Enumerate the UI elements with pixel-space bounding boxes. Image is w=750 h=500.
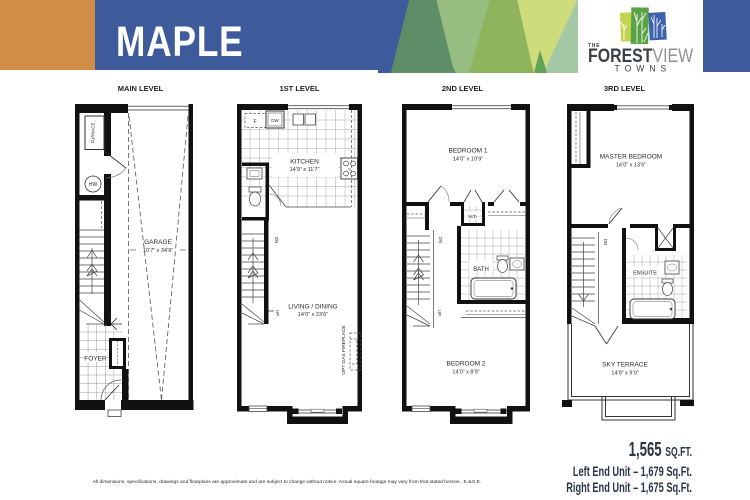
- svg-text:W/D: W/D: [468, 214, 477, 219]
- svg-text:10’7” x 34’9”: 10’7” x 34’9”: [143, 248, 173, 254]
- svg-text:KITCHEN: KITCHEN: [290, 159, 319, 166]
- svg-text:14’0” x 10’9”: 14’0” x 10’9”: [453, 157, 483, 163]
- svg-text:MASTER BEDROOM: MASTER BEDROOM: [600, 154, 662, 161]
- svg-text:TOWNS: TOWNS: [615, 63, 672, 73]
- svg-text:BEDROOM 2: BEDROOM 2: [446, 361, 485, 368]
- svg-text:DN: DN: [438, 237, 443, 244]
- svg-text:14’9” x 11’7”: 14’9” x 11’7”: [290, 167, 320, 173]
- svg-text:14’0” x 23’6”: 14’0” x 23’6”: [298, 312, 328, 318]
- svg-text:OPT GAS FIREPLACE: OPT GAS FIREPLACE: [341, 325, 347, 374]
- svg-text:DN: DN: [274, 237, 279, 244]
- svg-text:UP: UP: [275, 310, 280, 316]
- svg-text:FURNACE: FURNACE: [91, 122, 96, 143]
- svg-text:14’0” x 8’9”: 14’0” x 8’9”: [452, 370, 479, 376]
- svg-text:FOYER: FOYER: [84, 356, 107, 363]
- svg-text:SKY TERRACE: SKY TERRACE: [602, 362, 648, 369]
- svg-text:GARAGE: GARAGE: [144, 239, 172, 246]
- svg-text:DN: DN: [603, 239, 608, 246]
- svg-text:BEDROOM 1: BEDROOM 1: [448, 148, 487, 155]
- svg-text:ENSUITE: ENSUITE: [633, 271, 657, 277]
- svg-text:14’9” x 9’0”: 14’9” x 9’0”: [611, 371, 638, 377]
- svg-text:BATH: BATH: [473, 267, 489, 273]
- svg-text:UP: UP: [437, 310, 442, 316]
- svg-text:DW: DW: [271, 118, 279, 123]
- svg-text:UP: UP: [107, 311, 112, 317]
- svg-text:HW: HW: [89, 182, 98, 188]
- svg-text:S: S: [348, 167, 351, 172]
- svg-text:F: F: [253, 119, 256, 125]
- svg-text:14’0” x 13’6”: 14’0” x 13’6”: [616, 163, 646, 169]
- svg-text:LIVING / DINING: LIVING / DINING: [288, 304, 337, 311]
